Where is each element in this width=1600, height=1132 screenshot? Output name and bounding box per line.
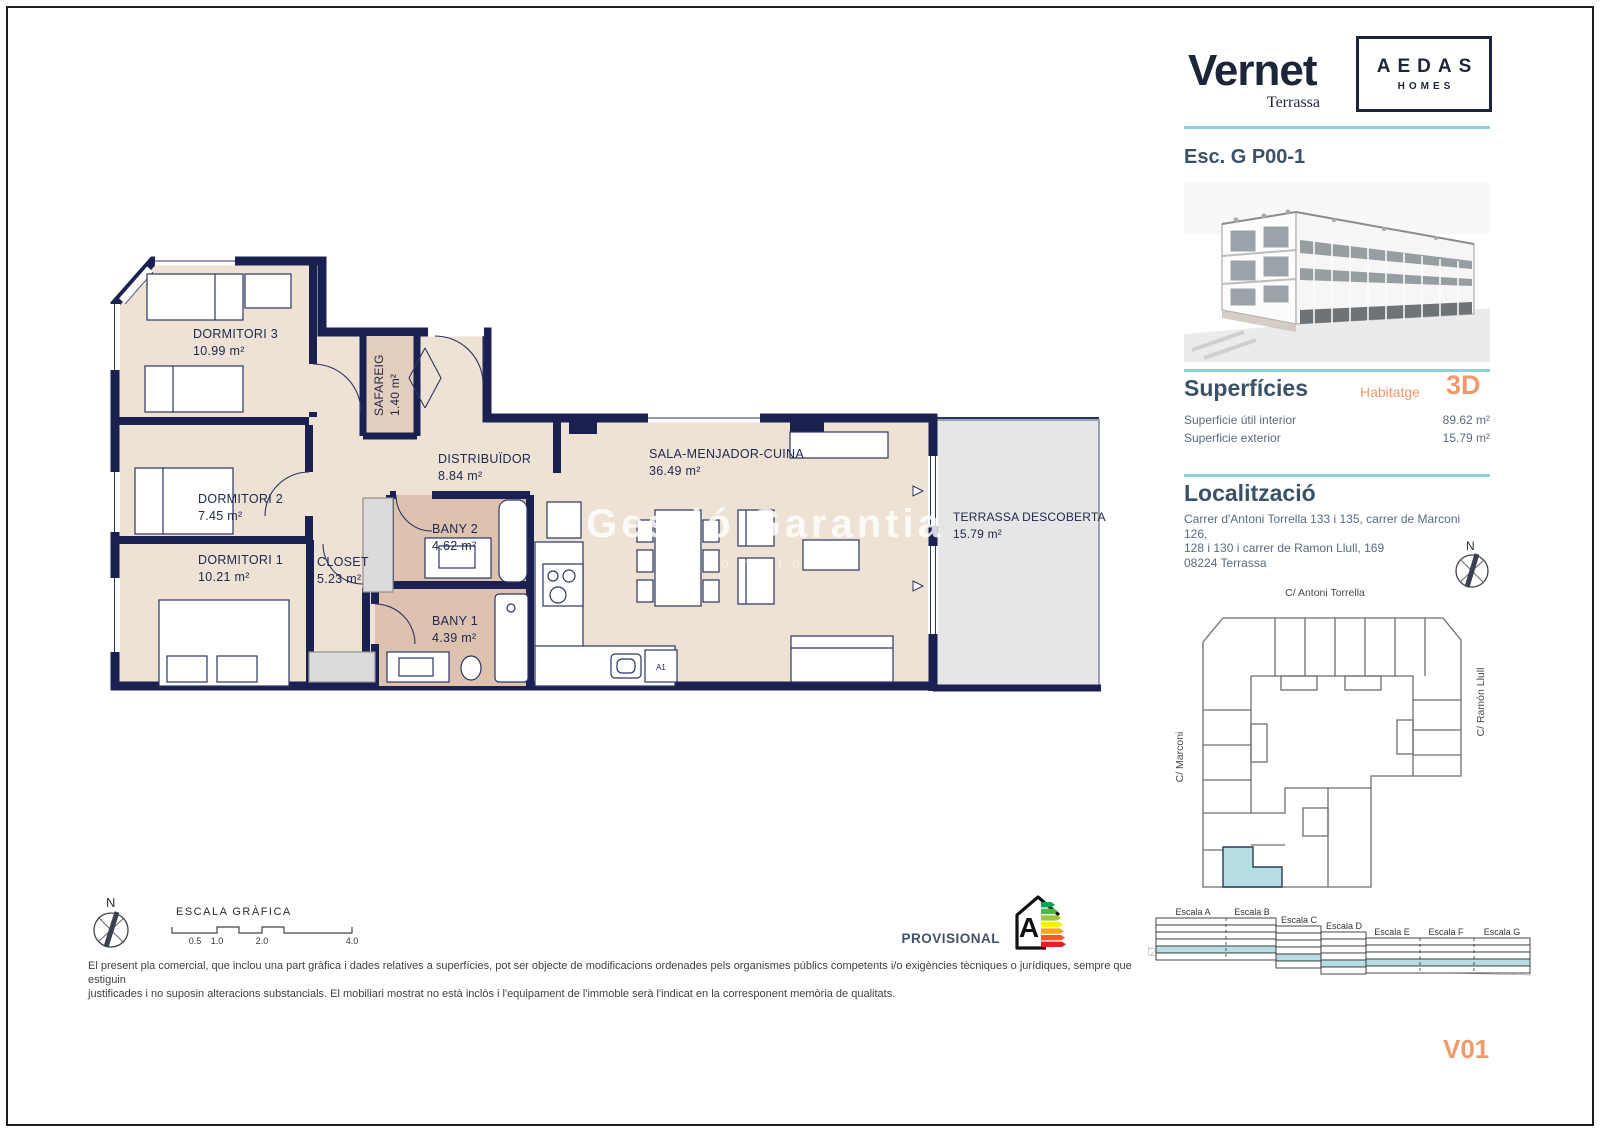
section-label: Escala G <box>1484 927 1521 937</box>
room-name: BANY 2 <box>432 522 478 536</box>
legal-disclaimer: El present pla comercial, que inclou una… <box>88 959 1148 1001</box>
plan-compass-icon: N <box>86 894 138 954</box>
room-area: 10.99 m² <box>193 344 245 358</box>
room-area: 4.62 m² <box>432 539 476 553</box>
localitzacio-title: Localització <box>1184 480 1316 507</box>
room-name: BANY 1 <box>432 614 478 628</box>
section-label: Escala F <box>1428 927 1464 937</box>
scale-tick: 0.5 <box>189 936 202 946</box>
site-plan: C/ Antoni Torrella C/ Marconi C/ Ramón L… <box>1170 580 1525 898</box>
energy-rating-letter: A <box>1019 912 1039 943</box>
building-sketch <box>1184 182 1490 362</box>
room-name: SALA-MENJADOR-CUINA <box>649 447 804 461</box>
surface-row-label: Superficie exterior <box>1184 431 1281 445</box>
energy-rating-icon: A <box>1006 888 1068 954</box>
section-label: Escala E <box>1374 927 1410 937</box>
address: Carrer d'Antoni Torrella 133 i 135, carr… <box>1184 512 1484 570</box>
provisional-label: PROVISIONAL <box>880 931 1000 946</box>
surface-row-value: 89.62 m² <box>1443 413 1490 427</box>
scale-tick: 1.0 <box>211 936 224 946</box>
divider-line <box>1184 474 1490 477</box>
compass-north-label: N <box>106 895 115 910</box>
room-name: DISTRIBUÏDOR <box>438 452 531 466</box>
room-name: DORMITORI 1 <box>198 553 283 567</box>
address-line: 128 i 130 i carrer de Ramon Llull, 169 <box>1184 541 1484 556</box>
unit-title: Esc. G P00-1 <box>1184 146 1305 169</box>
scale-bar: 0.5 1.0 2.0 4.0 <box>170 916 370 946</box>
room-area: 8.84 m² <box>438 469 482 483</box>
room-area: 5.23 m² <box>317 572 361 586</box>
section-label: Escala A <box>1175 907 1210 917</box>
room-name: TERRASSA DESCOBERTA <box>953 510 1106 524</box>
street-label-top: C/ Antoni Torrella <box>1285 587 1365 599</box>
aedas-logo-subtext: HOMES <box>1394 81 1455 92</box>
room-name: SAFAREIG <box>372 354 386 416</box>
compass-north-label: N <box>1466 539 1475 553</box>
room-area: 1.40 m² <box>388 374 402 416</box>
room-area: 36.49 m² <box>649 464 701 478</box>
dwelling-type-label: Habitatge <box>1360 384 1420 400</box>
surface-row-value: 15.79 m² <box>1443 431 1490 445</box>
dwelling-type-code: 3D <box>1446 370 1481 401</box>
aedas-logo-text: AEDAS <box>1370 56 1479 78</box>
disclaimer-line: justificades i no suposin alteracions su… <box>88 987 1148 1001</box>
disclaimer-line: El present pla comercial, que inclou una… <box>88 959 1148 987</box>
room-area: 4.39 m² <box>432 631 476 645</box>
aedas-homes-logo: AEDAS HOMES <box>1356 36 1492 112</box>
divider-line <box>1184 369 1490 372</box>
section-label: Escala D <box>1326 921 1363 931</box>
street-label-left: C/ Marconi <box>1174 732 1186 783</box>
project-logo: Vernet <box>1188 46 1317 96</box>
address-line: Carrer d'Antoni Torrella 133 i 135, carr… <box>1184 512 1484 541</box>
building-section-diagram: Escala A Escala B Escala C Escala D Esca… <box>1148 898 1538 978</box>
room-name: DORMITORI 2 <box>198 492 283 506</box>
appliance-label: A1 <box>656 663 666 672</box>
room-area: 15.79 m² <box>953 527 1002 541</box>
room-name: DORMITORI 3 <box>193 327 278 341</box>
room-area: 7.45 m² <box>198 509 242 523</box>
address-line: 08224 Terrassa <box>1184 556 1484 571</box>
scale-tick: 4.0 <box>346 936 359 946</box>
section-label: Escala B <box>1234 907 1270 917</box>
surface-row-label: Superficie útil interior <box>1184 413 1296 427</box>
room-area: 10.21 m² <box>198 570 250 584</box>
scale-tick: 2.0 <box>256 936 269 946</box>
energy-bars <box>1041 902 1066 947</box>
plan-sheet: Vernet Terrassa AEDAS HOMES Esc. G P00-1 <box>0 0 1600 1132</box>
project-logo-subtitle: Terrassa <box>1188 94 1320 112</box>
street-label-right: C/ Ramón Llull <box>1475 668 1487 737</box>
terrace <box>933 414 1101 691</box>
room-name: CLOSET <box>317 555 369 569</box>
divider-line <box>1184 126 1490 129</box>
section-label: Escala C <box>1281 915 1318 925</box>
floor-plan: A1 DORMITORI 3 10.99 m² SAFAREIG 1.40 m²… <box>95 248 1107 700</box>
superficies-title: Superfícies <box>1184 375 1308 402</box>
version-label: V01 <box>1443 1034 1489 1065</box>
